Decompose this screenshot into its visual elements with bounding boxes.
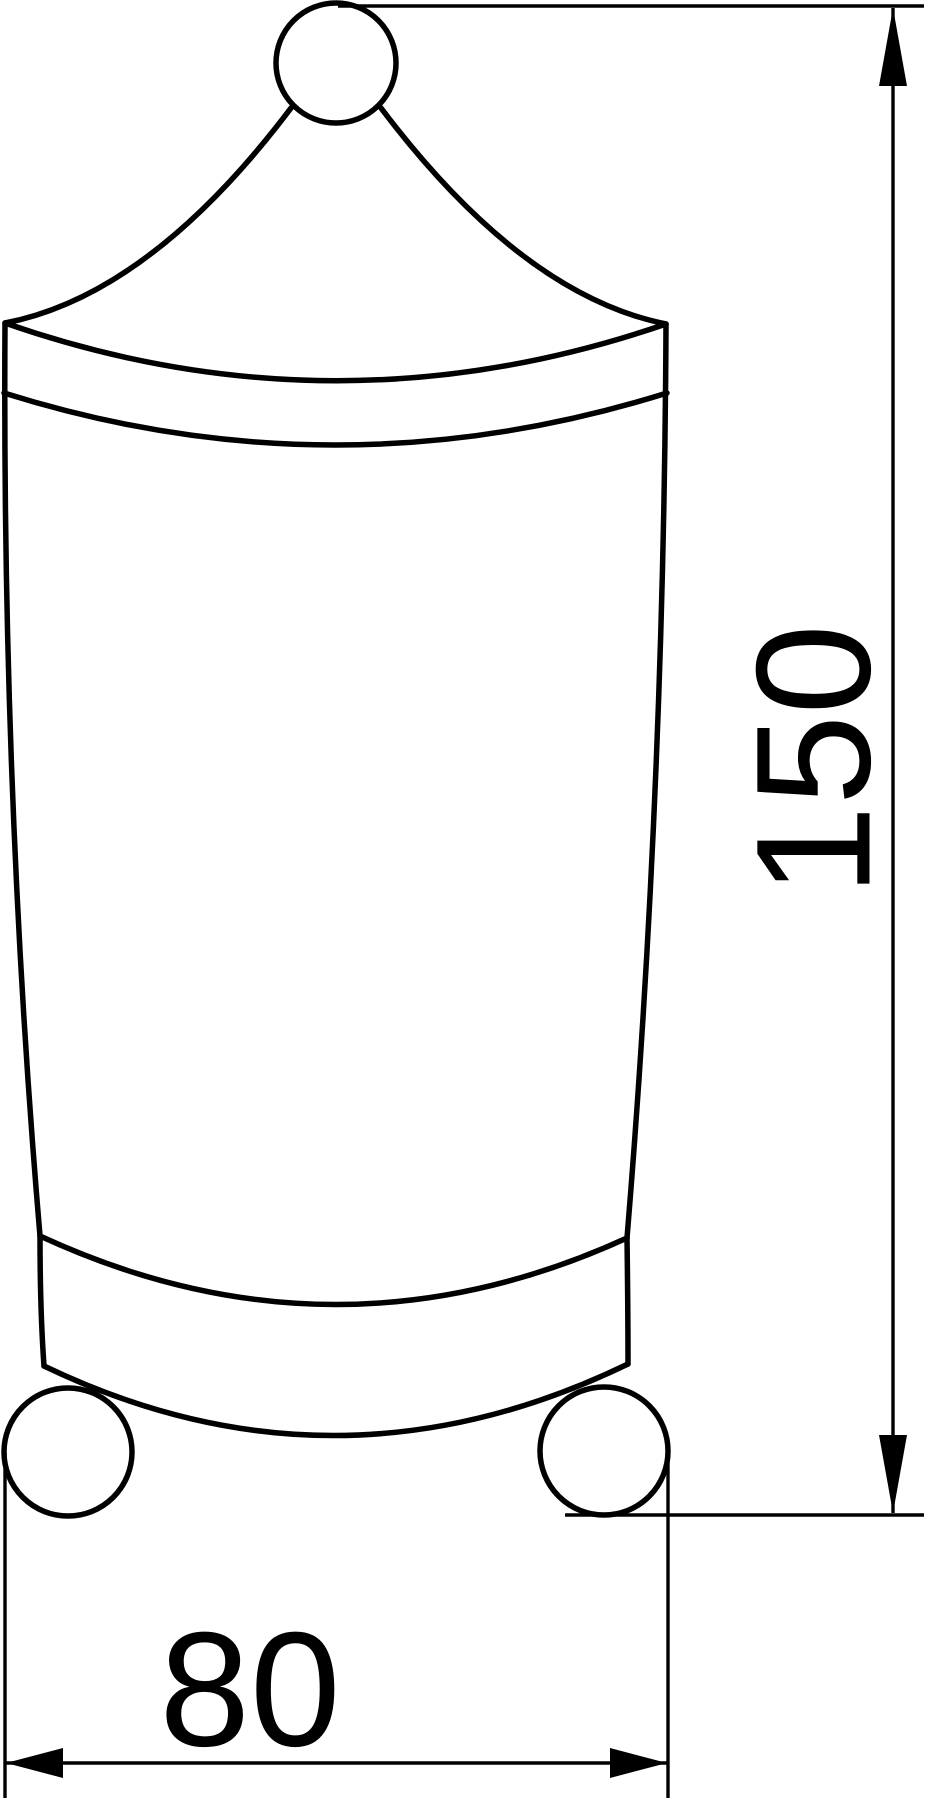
arrow-right-icon — [610, 1748, 667, 1778]
roof-curve-left — [5, 108, 291, 323]
ball-foot-left — [4, 1388, 132, 1516]
rim-band-top-curve — [5, 323, 666, 381]
width-dimension-label: 80 — [159, 1598, 340, 1781]
tumbler-dimension-drawing: 150 80 — [0, 0, 927, 1800]
drawing-page: 150 80 — [0, 0, 927, 1800]
body-right-edge — [627, 324, 666, 1238]
arrow-up-icon — [879, 8, 907, 86]
body-right-edge-lower — [627, 1238, 628, 1364]
height-dimension: 150 — [338, 6, 924, 1515]
top-ball-knob — [276, 3, 396, 123]
body-left-edge — [5, 323, 40, 1236]
arrow-left-icon — [6, 1748, 63, 1778]
roof-curve-right — [381, 108, 666, 324]
body-bottom-curve — [44, 1364, 628, 1436]
rim-band-bottom-curve — [4, 393, 667, 445]
ball-foot-right — [540, 1387, 668, 1515]
body-left-edge-lower — [40, 1236, 44, 1366]
arrow-down-icon — [879, 1435, 907, 1513]
lower-band-top-curve — [40, 1236, 627, 1305]
height-dimension-label: 150 — [722, 624, 905, 896]
object-outline — [4, 3, 668, 1516]
